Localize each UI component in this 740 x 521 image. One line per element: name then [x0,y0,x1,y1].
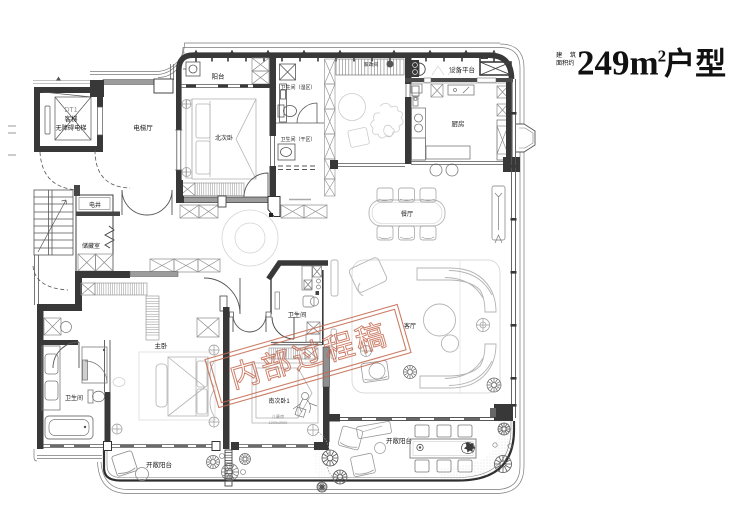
svg-text:家政间: 家政间 [364,61,379,68]
svg-text:无障碍电梯: 无障碍电梯 [56,124,87,132]
svg-text:电井: 电井 [89,201,101,209]
svg-text:249m2户型: 249m2户型 [577,44,726,83]
svg-text:开敞阳台: 开敞阳台 [146,460,172,469]
svg-text:阳台: 阳台 [212,72,225,81]
svg-text:南次卧1: 南次卧1 [268,397,290,405]
svg-text:卫生间: 卫生间 [65,394,83,402]
svg-text:客厅: 客厅 [404,322,416,330]
svg-text:卫生间: 卫生间 [288,311,307,319]
svg-text:电梯厅: 电梯厅 [133,123,153,132]
svg-text:北次卧: 北次卧 [215,134,233,142]
svg-text:餐厅: 餐厅 [401,210,413,218]
svg-text:1200x2000: 1200x2000 [269,421,288,425]
svg-text:厨房: 厨房 [452,119,465,128]
svg-text:设备平台: 设备平台 [449,65,475,74]
svg-text:卫生间（湿区）: 卫生间（湿区） [280,84,315,91]
svg-text:客梯: 客梯 [65,114,79,123]
svg-text:储藏室: 储藏室 [82,242,100,250]
svg-text:主卧: 主卧 [155,341,169,350]
svg-text:儿童房: 儿童房 [272,413,285,420]
svg-text:面积约: 面积约 [556,59,575,67]
svg-text:DT1: DT1 [64,107,77,114]
svg-text:建 筑: 建 筑 [556,51,579,59]
svg-text:卫生间（干区）: 卫生间（干区） [280,136,315,143]
svg-text:开敞阳台: 开敞阳台 [386,436,412,445]
